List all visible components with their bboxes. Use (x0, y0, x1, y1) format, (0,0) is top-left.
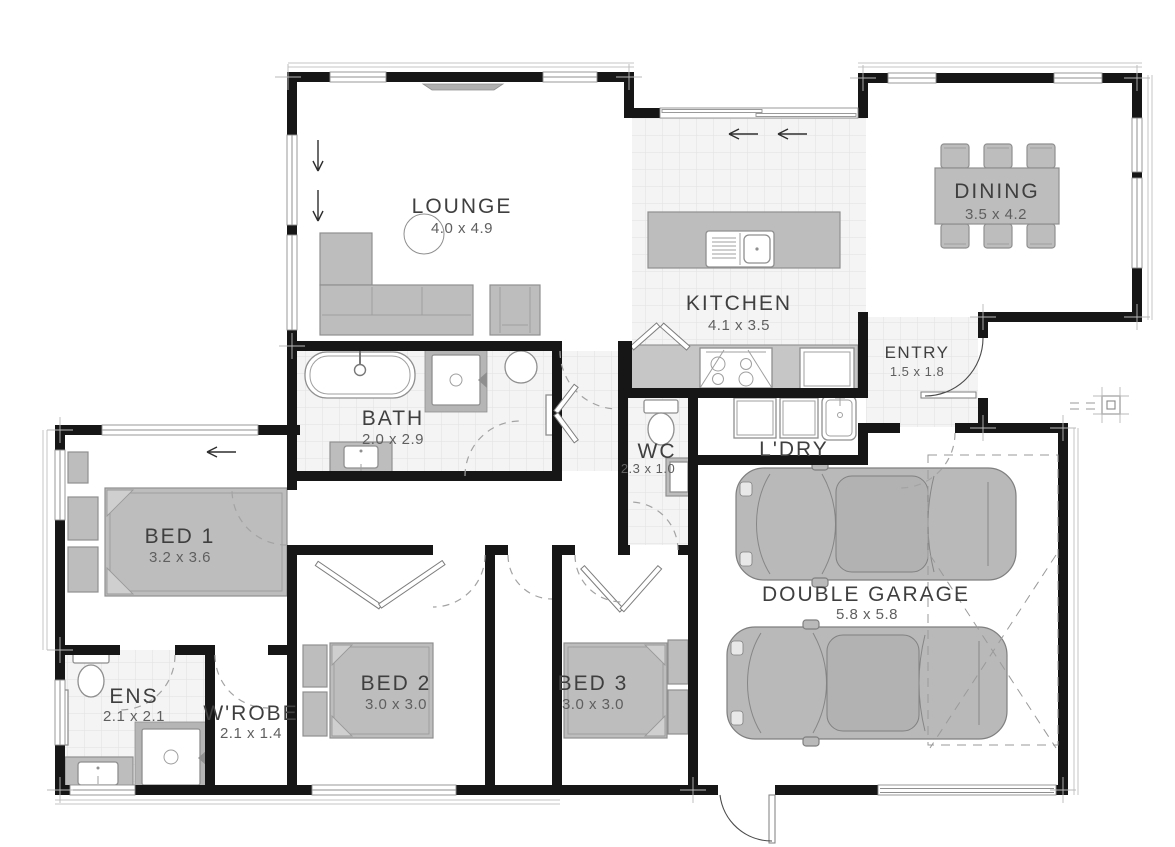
nightstand (303, 645, 327, 687)
round-basin (505, 351, 537, 383)
room-label-bath: BATH (362, 407, 424, 430)
room-label-bed3: BED 3 (558, 672, 629, 695)
window (888, 73, 936, 83)
down-arrow-icon (313, 190, 323, 221)
room-label-dining: DINING (954, 180, 1040, 203)
room-label-ldry: L'DRY (759, 438, 829, 461)
room-dims-wrobe: 2.1 x 1.4 (220, 725, 282, 742)
garage-rear-door (720, 795, 775, 843)
window (1132, 118, 1142, 172)
dresser (68, 452, 88, 483)
room-dims-lounge: 4.0 x 4.9 (431, 220, 493, 237)
bathtub (305, 348, 415, 398)
nightstand (668, 690, 688, 734)
car (736, 461, 1016, 587)
nightstand (303, 692, 327, 736)
window (543, 72, 597, 82)
towel-rail (546, 395, 553, 435)
room-label-lounge: LOUNGE (412, 195, 513, 218)
ens-vanity (65, 757, 133, 789)
room-label-ens: ENS (109, 685, 158, 708)
room-dims-ens: 2.1 x 2.1 (103, 708, 165, 725)
porch-post (1070, 387, 1129, 423)
laundry-tub (822, 396, 856, 440)
floor-plan-page: LOUNGE 4.0 x 4.9 KITCHEN 4.1 x 3.5 DININ… (0, 0, 1175, 847)
room-dims-garage: 5.8 x 5.8 (836, 606, 898, 623)
window (102, 425, 258, 435)
left-arrow-icon (207, 447, 236, 457)
toilet-cistern (644, 400, 678, 413)
window (330, 72, 386, 82)
bed1-furniture (68, 452, 287, 596)
washing-machine (734, 398, 776, 438)
window (1132, 178, 1142, 268)
garage-door (878, 785, 1056, 795)
sliding-door (660, 108, 858, 118)
wrobe-door-arc (215, 655, 268, 708)
floor-plan-svg: LOUNGE 4.0 x 4.9 KITCHEN 4.1 x 3.5 DININ… (0, 0, 1175, 847)
room-label-wrobe: W'ROBE (203, 702, 298, 725)
rear-door-opening (718, 785, 775, 795)
nightstand (68, 497, 98, 540)
wardrobe-bifold-doors (315, 561, 445, 609)
room-label-bed2: BED 2 (361, 672, 432, 695)
room-label-wc: WC (638, 440, 677, 463)
car (727, 620, 1007, 746)
room-label-garage: DOUBLE GARAGE (762, 583, 970, 606)
sofa-chaise (320, 233, 372, 285)
room-dims-dining: 3.5 x 4.2 (965, 206, 1027, 223)
room-dims-bed1: 3.2 x 3.6 (149, 549, 211, 566)
room-label-entry: ENTRY (885, 343, 950, 362)
room-dims-bed3: 3.0 x 3.0 (562, 696, 624, 713)
bed3-door-arc (575, 555, 622, 602)
room-label-bed1: BED 1 (145, 525, 216, 548)
front-door-opening (978, 338, 988, 398)
wardrobe-bifold-doors (581, 566, 662, 612)
room-dims-entry: 1.5 x 1.8 (890, 364, 944, 379)
fridge (800, 348, 854, 390)
room-dims-kitchen: 4.1 x 3.5 (708, 317, 770, 334)
toilet-bowl (78, 665, 104, 697)
island-sink (706, 231, 774, 267)
down-arrow-icon (313, 140, 323, 171)
sofa (320, 285, 473, 335)
window (1054, 73, 1102, 83)
nightstand (668, 640, 688, 684)
room-dims-bath: 2.0 x 2.9 (362, 431, 424, 448)
dryer (780, 398, 818, 438)
laundry-appliances (734, 396, 856, 440)
room-label-kitchen: KITCHEN (686, 292, 792, 315)
nightstand (68, 547, 98, 592)
ens-shower (135, 722, 207, 792)
shower (425, 348, 487, 412)
room-dims-bed2: 3.0 x 3.0 (365, 696, 427, 713)
window (55, 450, 65, 520)
tv-unit (423, 84, 503, 90)
linen-door-arc (508, 555, 552, 599)
window (312, 785, 456, 795)
armchair (490, 285, 540, 335)
window (287, 235, 297, 330)
window (287, 135, 297, 225)
stove (700, 348, 772, 388)
room-dims-wc: 2.3 x 1.0 (621, 461, 675, 476)
window (70, 785, 135, 795)
window (55, 680, 65, 745)
